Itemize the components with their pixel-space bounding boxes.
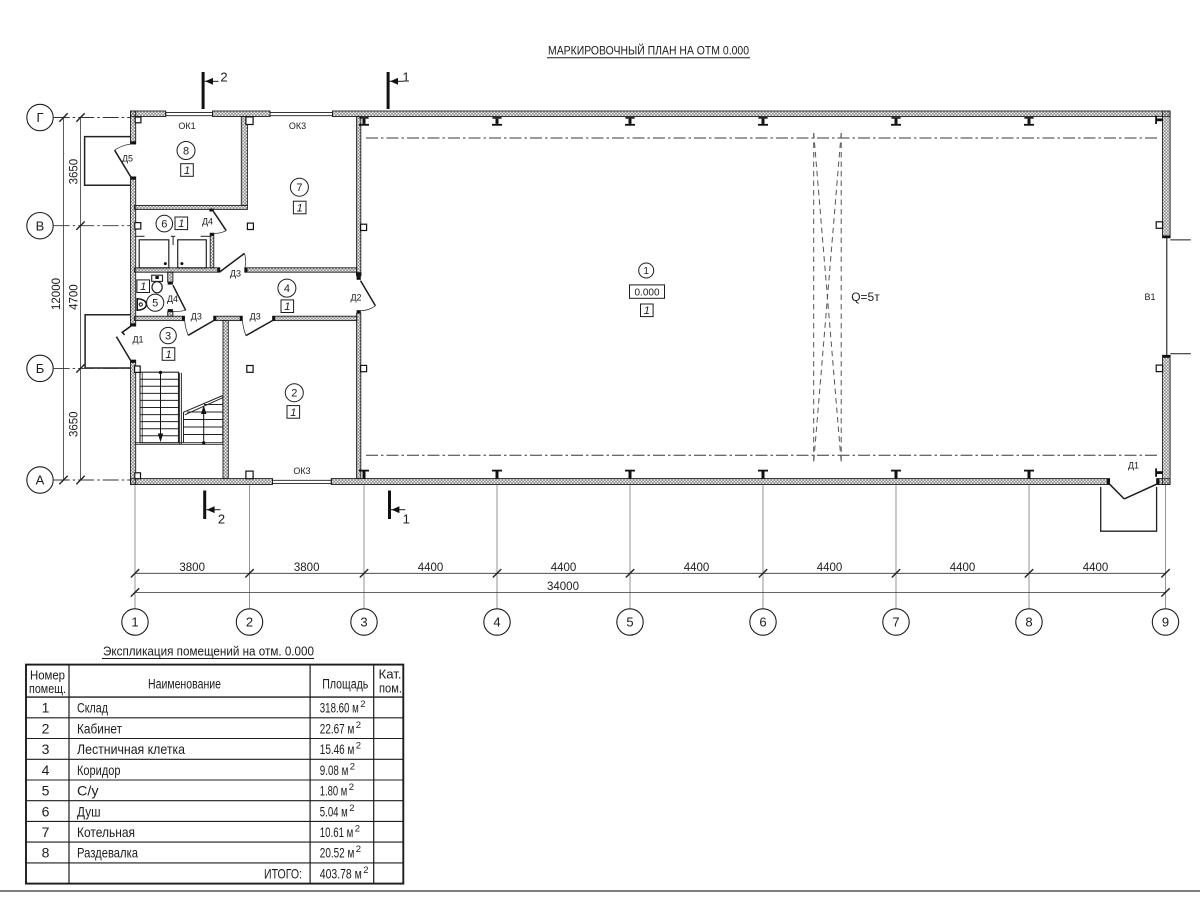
svg-text:ОК3: ОК3: [289, 121, 306, 131]
svg-text:Кабинет: Кабинет: [77, 720, 122, 736]
svg-text:8: 8: [42, 845, 50, 861]
svg-text:В1: В1: [1144, 292, 1155, 302]
svg-text:1: 1: [644, 305, 650, 317]
svg-text:3: 3: [42, 741, 50, 757]
svg-text:1: 1: [184, 165, 190, 177]
svg-text:3800: 3800: [294, 562, 320, 574]
svg-text:2: 2: [246, 615, 253, 630]
svg-text:3: 3: [165, 331, 171, 343]
svg-text:3650: 3650: [68, 411, 80, 437]
svg-text:4400: 4400: [1083, 562, 1109, 574]
svg-text:403.78 м: 403.78 м: [320, 866, 362, 882]
svg-text:2: 2: [355, 824, 360, 835]
svg-text:7: 7: [892, 615, 899, 630]
svg-text:Д3: Д3: [191, 312, 202, 322]
svg-text:2: 2: [291, 388, 297, 400]
svg-text:Г: Г: [36, 110, 43, 125]
svg-text:Q=5т: Q=5т: [851, 290, 880, 304]
svg-text:318.60 м: 318.60 м: [320, 700, 359, 716]
svg-text:0.000: 0.000: [634, 287, 659, 298]
svg-text:3: 3: [360, 615, 367, 630]
svg-text:пом.: пом.: [379, 681, 402, 696]
svg-text:Наименование: Наименование: [148, 676, 221, 691]
svg-text:1: 1: [165, 349, 171, 361]
svg-text:5: 5: [42, 783, 50, 799]
svg-text:3650: 3650: [68, 159, 80, 185]
svg-text:ИТОГО:: ИТОГО:: [264, 866, 302, 882]
svg-text:Д4: Д4: [167, 294, 178, 304]
svg-text:9: 9: [1162, 615, 1169, 630]
svg-text:6: 6: [42, 803, 50, 819]
svg-text:1: 1: [178, 218, 184, 230]
svg-text:1: 1: [402, 70, 409, 85]
svg-text:4400: 4400: [950, 562, 976, 574]
svg-text:Д3: Д3: [230, 268, 241, 278]
svg-text:4400: 4400: [551, 562, 577, 574]
svg-text:1: 1: [140, 281, 146, 293]
svg-text:Коридор: Коридор: [77, 762, 121, 778]
svg-text:8: 8: [1025, 615, 1032, 630]
svg-text:10.61 м: 10.61 м: [320, 824, 354, 840]
svg-text:2: 2: [360, 699, 365, 710]
svg-text:5: 5: [152, 298, 158, 310]
svg-text:1: 1: [284, 301, 290, 313]
svg-text:7: 7: [42, 824, 50, 840]
svg-text:4: 4: [284, 283, 290, 295]
svg-text:5.04 м: 5.04 м: [320, 803, 348, 819]
svg-text:1: 1: [297, 202, 303, 214]
svg-text:В: В: [36, 218, 45, 233]
svg-text:1: 1: [643, 266, 649, 277]
svg-text:Площадь: Площадь: [322, 676, 368, 691]
svg-text:А: А: [36, 473, 45, 488]
svg-text:1: 1: [42, 700, 50, 716]
svg-text:20.52 м: 20.52 м: [320, 845, 355, 861]
svg-text:4700: 4700: [68, 284, 80, 310]
svg-text:2: 2: [349, 782, 354, 793]
svg-text:Д3: Д3: [250, 312, 261, 322]
svg-text:12000: 12000: [51, 278, 63, 310]
svg-text:Д1: Д1: [1128, 461, 1139, 471]
svg-text:3800: 3800: [179, 562, 205, 574]
svg-text:8: 8: [183, 145, 189, 157]
svg-text:2: 2: [42, 720, 50, 736]
svg-text:Б: Б: [36, 361, 45, 376]
svg-text:4400: 4400: [418, 562, 444, 574]
svg-text:2: 2: [220, 70, 227, 85]
svg-text:Котельная: Котельная: [77, 824, 135, 840]
svg-text:2: 2: [349, 803, 354, 814]
svg-text:4400: 4400: [817, 562, 843, 574]
svg-text:ОК1: ОК1: [178, 121, 195, 131]
svg-text:Д4: Д4: [202, 216, 213, 226]
svg-text:4: 4: [493, 615, 500, 630]
svg-text:6: 6: [759, 615, 766, 630]
svg-text:6: 6: [161, 218, 167, 230]
svg-text:Душ: Душ: [77, 803, 101, 819]
svg-text:ОК3: ОК3: [293, 466, 310, 476]
svg-text:Экспликация помещений на отм.: Экспликация помещений на отм. 0.000: [103, 644, 314, 658]
svg-text:4400: 4400: [684, 562, 710, 574]
svg-text:Лестничная клетка: Лестничная клетка: [77, 741, 185, 757]
svg-text:МАРКИРОВОЧНЫЙ ПЛАН НА ОТМ 0.00: МАРКИРОВОЧНЫЙ ПЛАН НА ОТМ 0.000: [548, 45, 749, 58]
svg-text:С/у: С/у: [77, 783, 99, 799]
svg-text:1: 1: [131, 615, 138, 630]
svg-text:7: 7: [296, 182, 302, 194]
svg-text:2: 2: [356, 720, 361, 731]
svg-text:22.67 м: 22.67 м: [320, 720, 355, 736]
svg-text:2: 2: [350, 761, 355, 772]
svg-text:1: 1: [403, 512, 410, 527]
svg-text:Раздевалка: Раздевалка: [77, 845, 138, 861]
svg-text:34000: 34000: [547, 581, 579, 593]
svg-text:Склад: Склад: [77, 700, 108, 716]
svg-text:4: 4: [42, 762, 50, 778]
svg-text:Кат.: Кат.: [379, 667, 402, 682]
svg-text:2: 2: [363, 865, 368, 876]
svg-text:Д2: Д2: [350, 292, 361, 302]
svg-text:2: 2: [218, 512, 225, 527]
svg-text:1: 1: [290, 407, 296, 419]
svg-text:помещ.: помещ.: [29, 681, 66, 696]
svg-text:5: 5: [626, 615, 633, 630]
svg-text:2: 2: [356, 741, 361, 752]
svg-text:1.80 м: 1.80 м: [320, 783, 348, 799]
svg-text:Д1: Д1: [132, 335, 143, 345]
svg-text:2: 2: [356, 844, 361, 855]
svg-text:15.46 м: 15.46 м: [320, 741, 355, 757]
svg-text:Д5: Д5: [122, 154, 133, 164]
svg-text:9.08 м: 9.08 м: [320, 762, 349, 778]
